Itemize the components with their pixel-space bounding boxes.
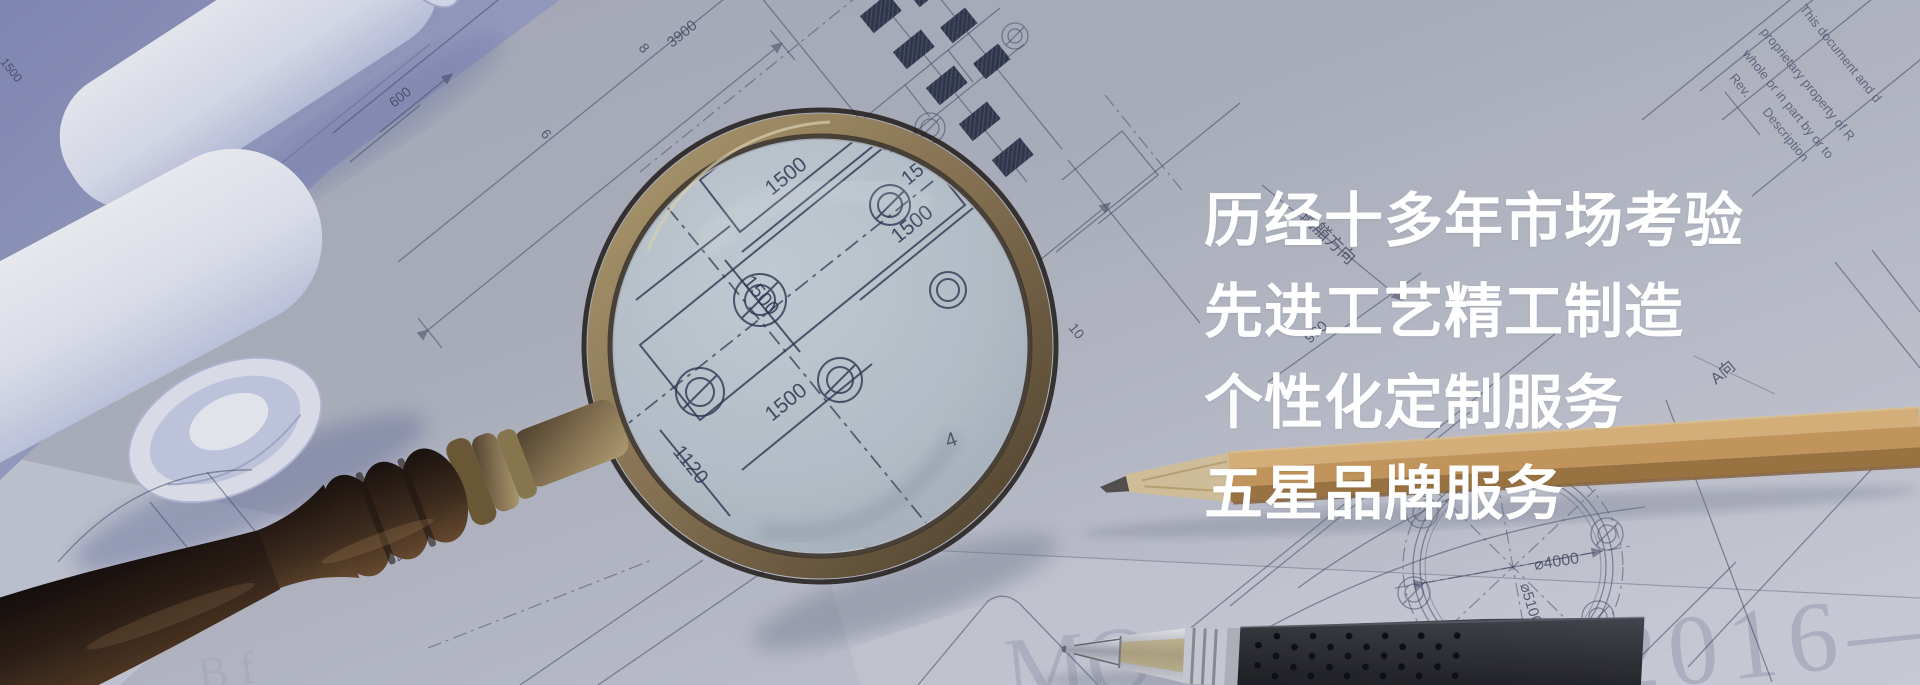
slogan-line-2: 先进工艺精工制造 xyxy=(1204,267,1744,358)
slogan-line-3: 个性化定制服务 xyxy=(1204,358,1744,449)
slogan-line-4: 五星品牌服务 xyxy=(1204,449,1744,540)
slogan-line-1: 历经十多年市场考验 xyxy=(1204,176,1744,267)
hero-slogans: 历经十多年市场考验 先进工艺精工制造 个性化定制服务 五星品牌服务 xyxy=(1204,176,1744,540)
hero-banner: B f MO ted 2016— B 1500 xyxy=(0,0,1920,685)
